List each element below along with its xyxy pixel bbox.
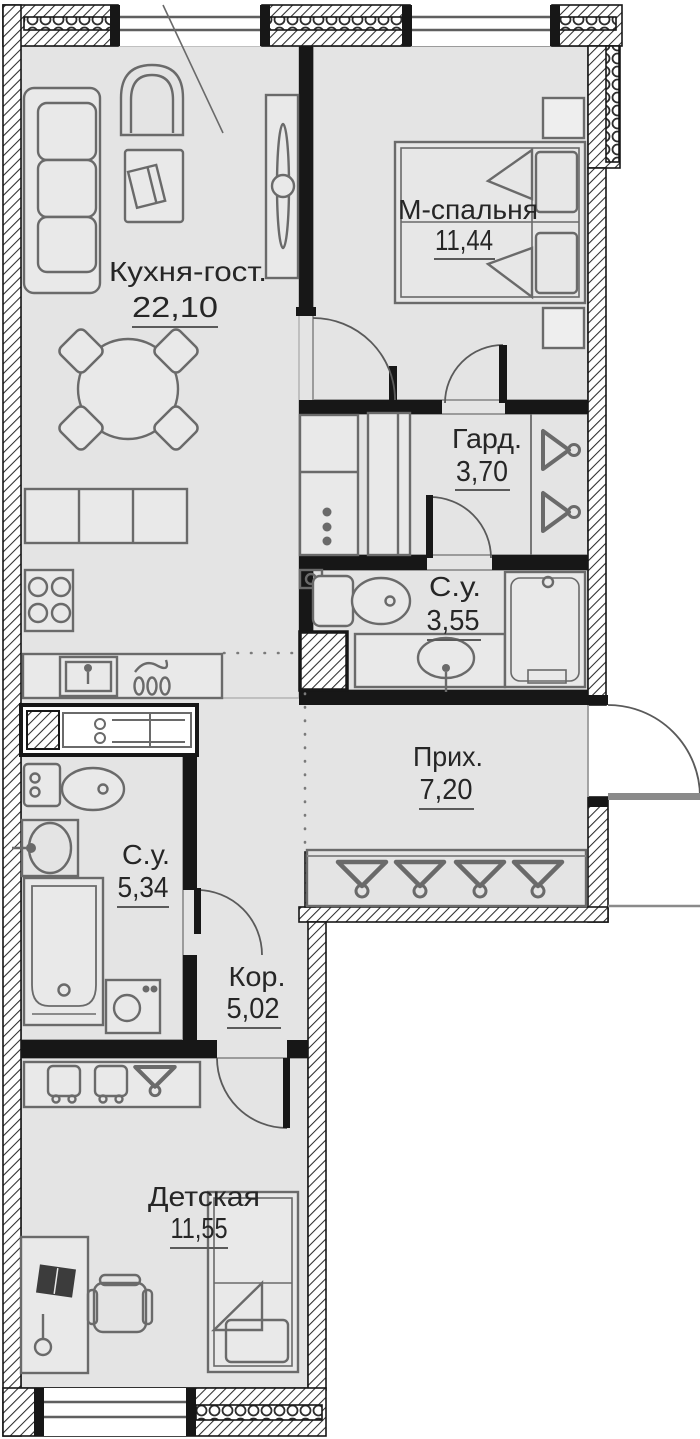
coffee-table-icon — [125, 150, 183, 222]
wall-bedroom-wardrobe-right — [505, 400, 588, 414]
door-leaf-master-bathroom — [426, 495, 433, 558]
door-leaf-wardrobe — [499, 345, 507, 403]
tall-cabinet-icon — [300, 415, 358, 555]
room-area: 7,20 — [420, 774, 473, 806]
duct-shaft-icon — [27, 711, 59, 749]
wall-right-mid — [588, 168, 606, 705]
wall-lower-right — [308, 922, 326, 1390]
room-name: С.у. — [429, 571, 481, 602]
sofa-icon — [24, 88, 100, 293]
room-area: 11,44 — [435, 225, 493, 257]
door-leaf-bathroom — [194, 888, 201, 934]
insulation-strip — [558, 17, 616, 30]
hallway-furniture — [307, 850, 586, 906]
label-master-bathroom: С.у. 3,55 — [427, 571, 482, 640]
room-name: Гард. — [452, 423, 522, 454]
wall-cap — [588, 695, 608, 705]
wall-wardrobe-bathroom-right — [492, 555, 588, 570]
floor-plan: Кухня-гост. 22,10 М-спальня 11,44 Гард. … — [0, 0, 700, 1439]
desk-icon — [21, 1237, 88, 1373]
stove-icon — [25, 570, 73, 631]
wall-bathroom-hallway — [299, 690, 588, 705]
room-area: 11,55 — [171, 1213, 228, 1245]
room-name: С.у. — [122, 839, 170, 870]
floor-plan-page: Кухня-гост. 22,10 М-спальня 11,44 Гард. … — [0, 0, 700, 1439]
wall-hallway-bottom — [299, 907, 608, 922]
wall-right-lower — [588, 797, 608, 922]
room-area: 5,02 — [227, 993, 280, 1025]
room-name: Кухня-гост. — [109, 256, 267, 287]
vanity-sink-icon — [355, 634, 505, 692]
room-name: М-спальня — [398, 194, 538, 225]
insulation-strip — [268, 17, 404, 30]
window-kitchen — [110, 5, 270, 46]
wall-left — [3, 5, 21, 1436]
nightstand-icon — [543, 98, 584, 138]
shower-icon — [505, 572, 585, 687]
room-name: Кор. — [229, 961, 286, 992]
insulation-strip — [606, 46, 619, 162]
window-bedroom — [402, 5, 560, 46]
room-name: Прих. — [413, 741, 483, 772]
bathtub-icon — [24, 878, 103, 1025]
window-kids-room — [34, 1388, 196, 1436]
room-name: Детская — [148, 1181, 260, 1212]
room-area: 5,34 — [118, 872, 169, 904]
washing-machine-icon — [106, 980, 160, 1033]
insulation-strip — [196, 1405, 322, 1420]
room-area: 3,70 — [456, 456, 508, 488]
room-area: 3,55 — [427, 605, 480, 637]
duct-shaft-band — [21, 705, 197, 755]
wall-kitchen-bedroom — [299, 46, 313, 307]
tall-cabinet-icon — [368, 413, 410, 555]
wall-kids-room-top-right — [287, 1040, 308, 1058]
wall-bathroom-corridor-lower — [183, 955, 197, 1047]
kitchen-sink-icon — [23, 654, 222, 698]
room-area: 22,10 — [132, 292, 218, 324]
wall-kids-room-top-left — [21, 1040, 217, 1058]
label-corridor: Кор. 5,02 — [227, 961, 286, 1028]
wall-cap — [588, 797, 608, 807]
tv-console-icon — [266, 95, 298, 278]
door-leaf-kids-room — [283, 1058, 290, 1128]
nightstand-icon — [543, 308, 584, 348]
label-bathroom: С.у. 5,34 — [117, 839, 170, 907]
kids-wardrobe — [24, 1062, 200, 1107]
wall-bathroom-corridor-upper — [183, 755, 197, 890]
duct-shaft-icon — [300, 632, 347, 690]
insulation-strip — [24, 17, 112, 30]
wall-cap — [296, 307, 316, 316]
wall-wardrobe-bathroom-left — [299, 555, 427, 570]
hallway-closet — [307, 850, 586, 906]
kitchen-cabinets-icon — [25, 489, 187, 543]
